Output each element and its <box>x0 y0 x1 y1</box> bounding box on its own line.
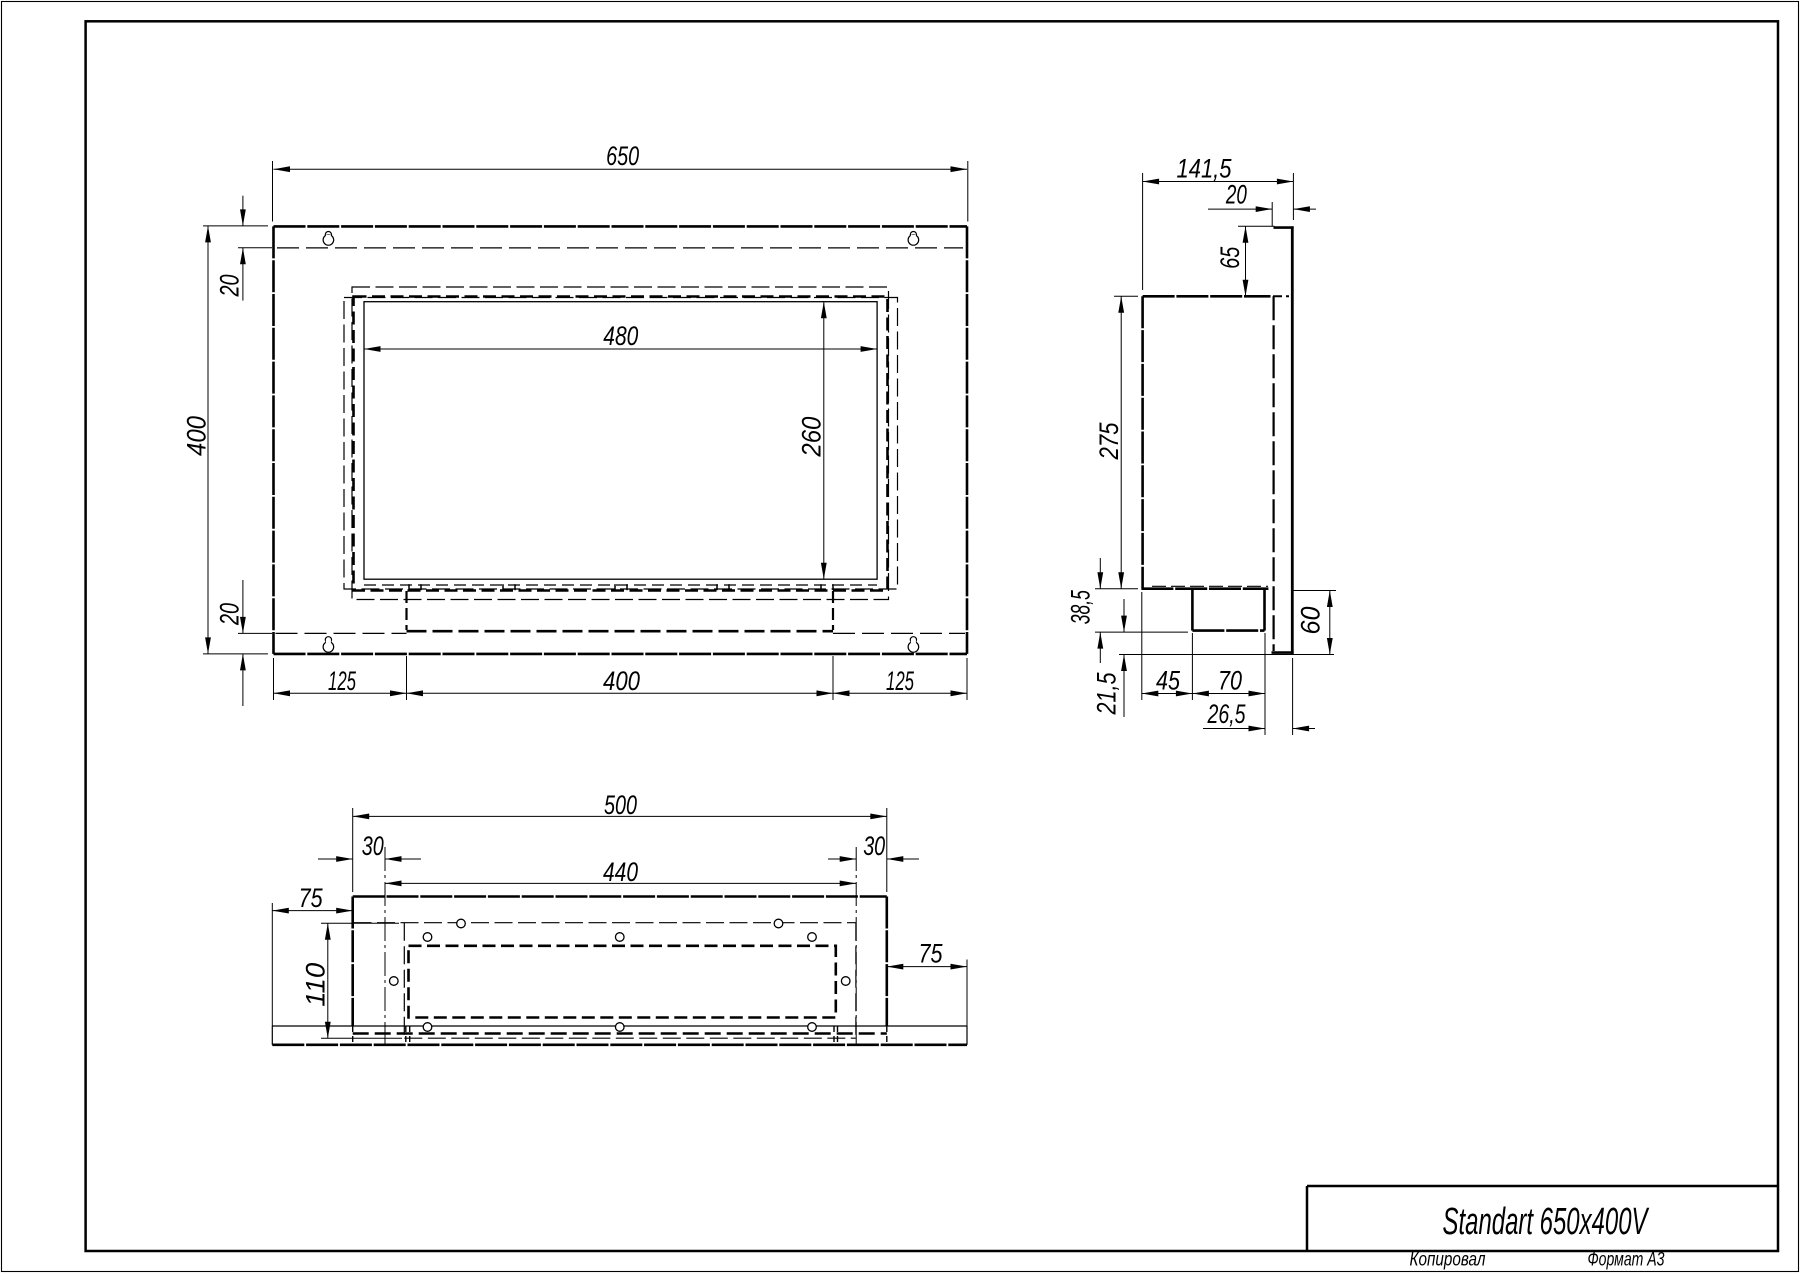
svg-text:38,5: 38,5 <box>1066 590 1096 625</box>
svg-text:480: 480 <box>603 321 638 351</box>
svg-text:60: 60 <box>1296 607 1326 635</box>
svg-text:260: 260 <box>797 417 827 458</box>
svg-text:75: 75 <box>299 883 324 913</box>
svg-text:275: 275 <box>1094 422 1124 461</box>
svg-text:Формат А3: Формат А3 <box>1588 1250 1665 1271</box>
svg-text:110: 110 <box>300 963 330 1007</box>
svg-text:440: 440 <box>603 857 638 887</box>
svg-text:125: 125 <box>328 666 357 696</box>
svg-text:400: 400 <box>182 416 212 456</box>
svg-text:Копировал: Копировал <box>1410 1250 1486 1271</box>
svg-text:26,5: 26,5 <box>1207 699 1246 729</box>
svg-text:141,5: 141,5 <box>1177 154 1233 184</box>
svg-text:30: 30 <box>362 831 384 861</box>
svg-text:400: 400 <box>603 666 640 696</box>
svg-text:650: 650 <box>606 141 639 171</box>
svg-text:65: 65 <box>1215 246 1245 269</box>
svg-text:500: 500 <box>604 790 637 820</box>
svg-text:20: 20 <box>1225 180 1247 210</box>
svg-text:45: 45 <box>1156 665 1181 695</box>
svg-text:30: 30 <box>863 831 885 861</box>
svg-text:125: 125 <box>886 666 915 696</box>
svg-text:70: 70 <box>1218 665 1242 695</box>
svg-text:75: 75 <box>919 938 944 968</box>
svg-text:20: 20 <box>215 603 245 626</box>
svg-text:20: 20 <box>215 275 245 298</box>
svg-text:21,5: 21,5 <box>1092 672 1122 716</box>
svg-text:Standart 650x400V: Standart 650x400V <box>1443 1201 1650 1243</box>
